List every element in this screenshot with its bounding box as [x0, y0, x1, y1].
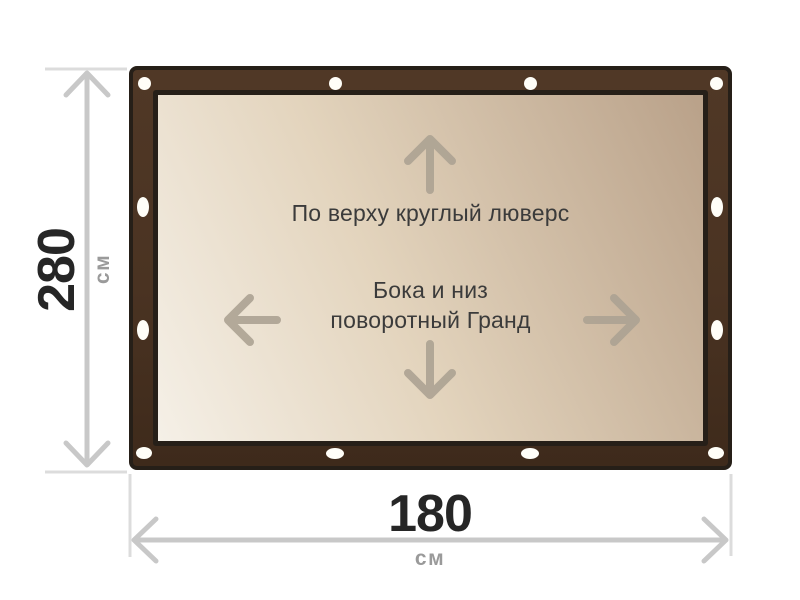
width-dimension-value: 180: [388, 484, 472, 544]
grommet-icon: [708, 447, 724, 459]
grommet-icon: [137, 320, 149, 340]
grommet-icon: [711, 320, 723, 340]
banner-size-diagram: По верху круглый люверс Бока и низ повор…: [0, 0, 800, 600]
grommet-icon: [329, 77, 342, 90]
arrow-down-icon: [408, 344, 452, 395]
grommet-icon: [524, 77, 537, 90]
grommet-icon: [711, 197, 723, 217]
grommet-icon: [326, 448, 344, 459]
height-dimension-value: 280: [27, 228, 87, 312]
note-sides-line1: Бока и низ: [158, 276, 703, 304]
height-dimension-unit: см: [91, 254, 115, 284]
note-sides-line2: поворотный Гранд: [158, 306, 703, 334]
fastening-direction-arrows: [158, 95, 703, 441]
grommet-icon: [521, 448, 539, 459]
grommet-icon: [138, 77, 151, 90]
grommet-icon: [136, 447, 152, 459]
note-top-edge: По верху круглый люверс: [158, 199, 703, 227]
grommet-icon: [710, 77, 723, 90]
grommet-icon: [137, 197, 149, 217]
banner-tarp: По верху круглый люверс Бока и низ повор…: [129, 66, 732, 470]
banner-panel: По верху круглый люверс Бока и низ повор…: [153, 90, 708, 446]
width-dimension-unit: см: [415, 547, 445, 571]
banner-panel-surface: По верху круглый люверс Бока и низ повор…: [158, 95, 703, 441]
arrow-up-icon: [408, 139, 452, 190]
